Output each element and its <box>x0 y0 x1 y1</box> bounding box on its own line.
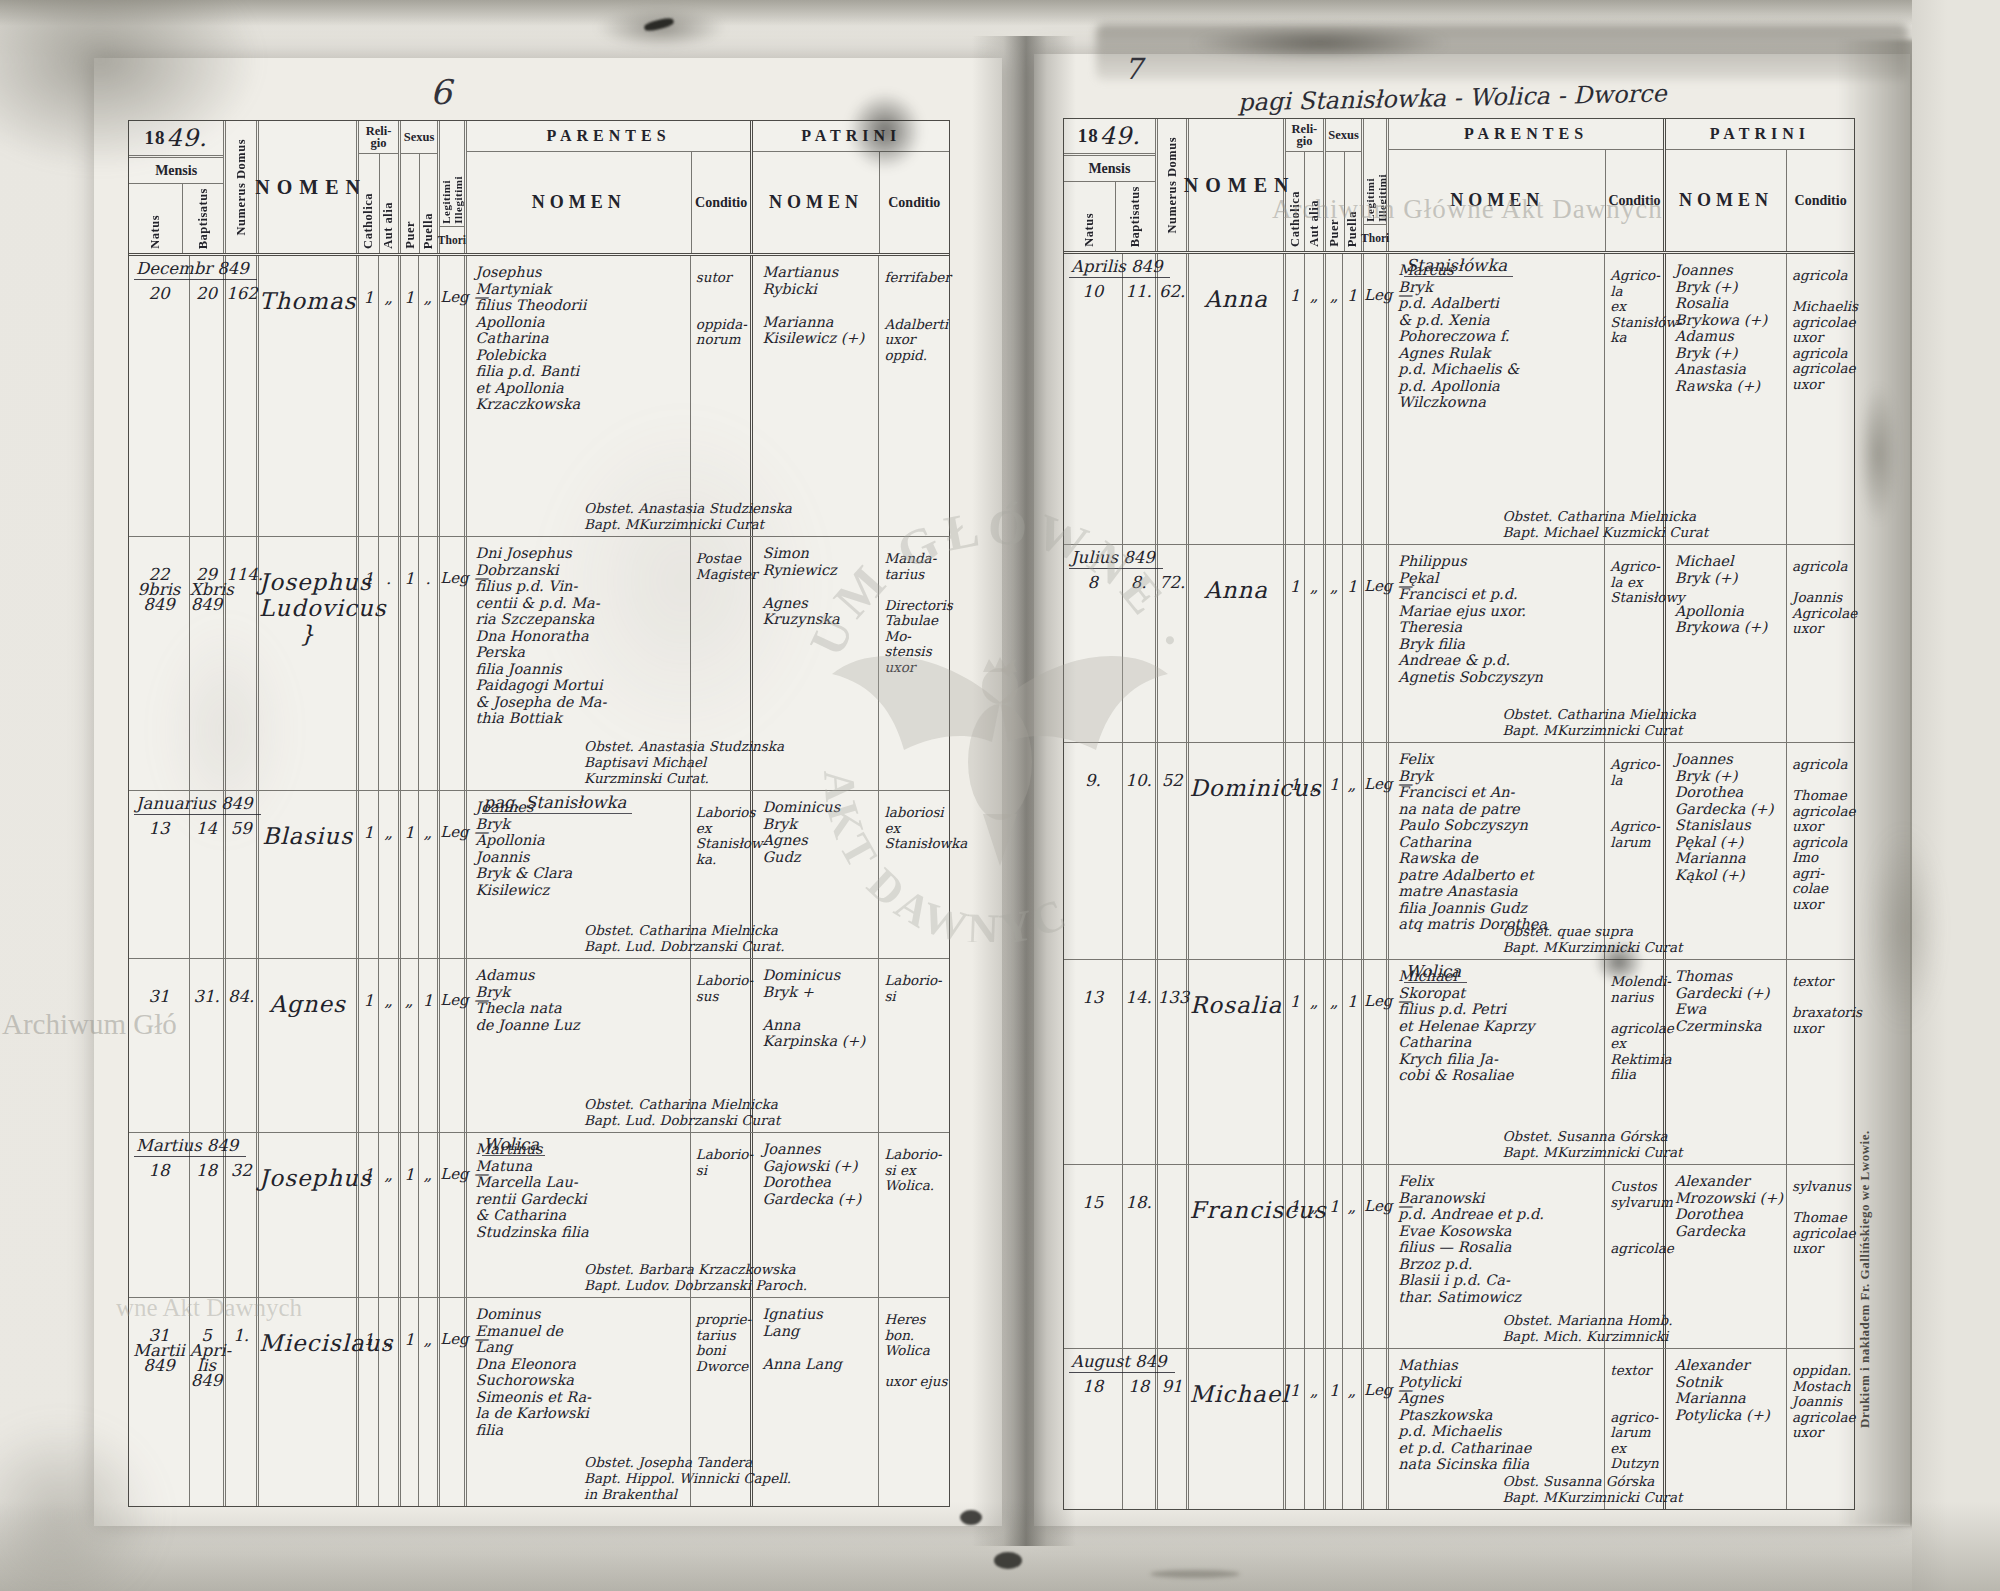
midwife-baptizer-note: Obstet. quae supra Bapt. MKurzimnicki Cu… <box>1502 923 1850 955</box>
year-label: 1849. <box>1064 119 1155 156</box>
baptisatus-value: 8. <box>1122 545 1155 742</box>
far-right-margin <box>1912 0 2000 1591</box>
thori-label: Thori <box>440 226 463 253</box>
month-annotation: Julius 849 <box>1069 548 1163 569</box>
catholica-mark: 1 <box>356 537 378 790</box>
catholica-mark: 1 <box>1283 1349 1304 1509</box>
natus-value: 31 Martii 849 <box>129 1298 189 1506</box>
midwife-baptizer-note: Obstet. Anastasia Studzienska Bapt. MKur… <box>584 500 945 532</box>
child-name: Thomas <box>256 256 356 536</box>
puella-mark: „ <box>1342 1349 1361 1509</box>
puer-mark: 1 <box>1323 1165 1342 1348</box>
parentes-nomen-label: NOMEN <box>467 152 691 253</box>
month-annotation: Januarius 849 <box>134 794 261 815</box>
patrini-header-block: PATRINI NOMEN Conditio <box>750 121 949 253</box>
aut-alia-mark: „ <box>1304 254 1323 544</box>
godparents-condition: agricola Michaelis agricolae uxor agrico… <box>1786 254 1854 544</box>
year-handwritten: 49. <box>1100 122 1141 150</box>
nomen-header: NOMEN <box>256 121 356 253</box>
baptisatus-value: 14 <box>189 791 223 958</box>
register-row: Januarius 849 pag. Stanisłowka 13 14 59 … <box>129 790 949 958</box>
legitimi-mark: Leg — <box>1361 743 1386 959</box>
register-row: 31 Martii 849 5 Apri- lis 849 1. Miecisl… <box>129 1297 949 1506</box>
legitimi-header-block: Legitimi Illegitimi Thori <box>437 121 463 253</box>
baptisatus-value: 18 <box>189 1133 223 1297</box>
baptisatus-value: 29 Xbris 849 <box>189 537 223 790</box>
domus-value <box>1155 1165 1187 1348</box>
parentes-label: PARENTES <box>1389 119 1662 150</box>
aut-alia-mark: „ <box>1304 1349 1323 1509</box>
aut-alia-label: Aut alia <box>381 202 396 249</box>
aut-alia-mark: . <box>378 537 398 790</box>
year-label: 1849. <box>129 121 223 158</box>
child-name: Josephus Ludovicus } <box>256 537 356 790</box>
midwife-baptizer-note: Obstet. Catharina Mielnicka Bapt. Lud. D… <box>584 922 945 954</box>
aut-alia-mark: „ <box>378 256 398 536</box>
child-name: Rosalia <box>1186 960 1282 1164</box>
puer-mark: „ <box>1323 545 1342 742</box>
parentes-header-block: PARENTES NOMEN Conditio <box>1386 119 1662 251</box>
month-annotation: Martius 849 <box>134 1136 246 1157</box>
parents-names: Marcus Bryk p.d. Adalberti & p.d. Xenia … <box>1386 254 1604 544</box>
numerus-domus-header: Numerus Domus <box>1155 119 1187 251</box>
midwife-baptizer-note: Obstet. Catharina Mielnicka Bapt. MKurzi… <box>1502 706 1850 738</box>
parentes-conditio-label: Conditio <box>1605 150 1662 251</box>
child-name: Agnes <box>256 959 356 1132</box>
right-page-number: 7 <box>1124 52 1142 86</box>
patrini-label: PATRINI <box>1666 119 1854 150</box>
patrini-header-block: PATRINI NOMEN Conditio <box>1663 119 1854 251</box>
natus-value: 31 <box>129 959 189 1132</box>
natus-value: 22 9bris 849 <box>129 537 189 790</box>
register-row: Wolica 13 14. 133 Rosalia 1 „ „ 1 Leg — … <box>1064 959 1854 1164</box>
place-annotation: pag. Stanisłowka <box>482 793 633 814</box>
month-annotation: Decembr 849 <box>134 259 257 280</box>
child-name: Miecislaus <box>256 1298 356 1506</box>
legitimi-mark: Leg — <box>437 959 463 1132</box>
aut-alia-label: Aut alia <box>1307 200 1322 247</box>
month-annotation: August 849 <box>1069 1352 1175 1373</box>
puer-mark: „ <box>398 959 418 1132</box>
parentes-label: PARENTES <box>467 121 751 152</box>
religio-header-block: Reli- gio Catholica Aut alia <box>356 121 398 253</box>
natus-value: 8 <box>1064 545 1122 742</box>
illegitimi-label: Illegitimi <box>1376 174 1386 222</box>
aut-alia-mark: „ <box>378 1298 398 1506</box>
baptisatus-value: 5 Apri- lis 849 <box>189 1298 223 1506</box>
register-table-right: 1849. Mensis Natus Baptisatus Numerus Do… <box>1063 118 1855 1510</box>
ink-dash-top <box>643 17 674 33</box>
parentes-nomen-label: NOMEN <box>1389 150 1605 251</box>
midwife-baptizer-note: Obstet. Barbara Krzaczkowska Bapt. Ludov… <box>584 1261 945 1293</box>
scanned-baptism-register: UM GŁÓWNE · AKT DAWNYCH Archiwum Główne … <box>0 0 2000 1591</box>
sexus-label: Sexus <box>401 121 437 154</box>
mensis-label: Mensis <box>1064 156 1155 182</box>
catholica-mark: 1 <box>356 1298 378 1506</box>
puella-mark: „ <box>418 1133 438 1297</box>
domus-value: 59 <box>223 791 256 958</box>
aut-alia-mark: „ <box>378 791 398 958</box>
midwife-baptizer-note: Obstet. Catharina Mielnicka Bapt. Michae… <box>1502 508 1850 540</box>
register-table-left: 1849. Mensis Natus Baptisatus Numerus Do… <box>128 120 950 1507</box>
domus-value: 84. <box>223 959 256 1132</box>
puer-mark: „ <box>1323 254 1342 544</box>
legitimi-mark: Leg — <box>1361 254 1386 544</box>
puer-mark: 1 <box>398 537 418 790</box>
baptisatus-label: Baptisatus <box>1128 186 1143 247</box>
child-name: Josephus <box>256 1133 356 1297</box>
puer-mark: 1 <box>398 791 418 958</box>
top-center-smudge <box>596 8 726 48</box>
puella-mark: „ <box>1342 1165 1361 1348</box>
parentes-conditio-label: Conditio <box>691 152 751 253</box>
catholica-mark: 1 <box>1283 545 1304 742</box>
catholica-mark: 1 <box>356 256 378 536</box>
year-printed: 18 <box>1078 125 1099 147</box>
puer-mark: 1 <box>398 256 418 536</box>
natus-value: 18 <box>1064 1349 1122 1509</box>
midwife-baptizer-note: Obstet. Anastasia Studzinska Baptisavi M… <box>584 738 945 786</box>
domus-value: 133 <box>1155 960 1187 1164</box>
parentes-header-block: PARENTES NOMEN Conditio <box>464 121 751 253</box>
natus-value: 20 <box>129 256 189 536</box>
left-page-number: 6 <box>430 72 452 112</box>
baptisatus-value: 18. <box>1122 1165 1155 1348</box>
baptisatus-value: 31. <box>189 959 223 1132</box>
domus-value: 91 <box>1155 1349 1187 1509</box>
legitimi-mark: Leg — <box>437 537 463 790</box>
sexus-header-block: Sexus Puer Puella <box>398 121 437 253</box>
register-row: 22 9bris 849 29 Xbris 849 114. Josephus … <box>129 536 949 790</box>
aut-alia-mark: „ <box>1304 545 1323 742</box>
baptisatus-label: Baptisatus <box>196 188 211 249</box>
legitimi-header-block: Legitimi Illegitimi Thori <box>1361 119 1386 251</box>
register-row: 15 18. Franciscus 1 „ 1 „ Leg — Felix Ba… <box>1064 1164 1854 1348</box>
legitimi-label: Legitimi <box>440 180 452 224</box>
top-edge-shadow <box>0 0 2000 26</box>
binding-streak <box>1150 1570 1240 1578</box>
mensis-header-block: 1849. Mensis Natus Baptisatus <box>1064 119 1155 251</box>
legitimi-mark: Leg — <box>1361 545 1386 742</box>
aut-alia-mark: „ <box>1304 1165 1323 1348</box>
puella-mark: „ <box>1342 743 1361 959</box>
place-annotation: Wolica <box>482 1135 545 1156</box>
register-row: Decembr 849 20 20 162 Thomas 1 „ 1 „ Leg… <box>129 256 949 536</box>
godparents-names: Martianus Rybicki Marianna Kisilewicz (+… <box>750 256 878 536</box>
register-row: Martius 849 Wolica 18 18 32 Josephus 1 „… <box>129 1132 949 1297</box>
godparents-names: Joannes Bryk (+) Rosalia Brykowa (+) Ada… <box>1663 254 1786 544</box>
midwife-baptizer-note: Obstet. Marianna Homb. Bapt. Mich. Kurzi… <box>1502 1312 1850 1344</box>
natus-value: 13 <box>1064 960 1122 1164</box>
register-row: 31 31. 84. Agnes 1 „ „ 1 Leg — Adamus Br… <box>129 958 949 1132</box>
godparents-condition: ferrifaber Adalberti uxor oppid. <box>878 256 949 536</box>
sexus-label: Sexus <box>1326 119 1361 152</box>
place-annotation: Stanisłówka <box>1404 256 1513 277</box>
puella-mark: 1 <box>1342 545 1361 742</box>
puer-mark: 1 <box>398 1298 418 1506</box>
catholica-label: Catholica <box>1288 191 1303 247</box>
puella-mark: . <box>418 537 438 790</box>
natus-label: Natus <box>1082 213 1097 247</box>
domus-value: 114. <box>223 537 256 790</box>
midwife-baptizer-note: Obstet. Susanna Górska Bapt. MKurzimnick… <box>1502 1128 1850 1160</box>
child-name: Anna <box>1186 254 1282 544</box>
domus-value: 52 <box>1155 743 1187 959</box>
legitimi-mark: Leg — <box>1361 1349 1386 1509</box>
domus-value: 162 <box>223 256 256 536</box>
catholica-mark: 1 <box>356 791 378 958</box>
legitimi-mark: Leg — <box>437 1133 463 1297</box>
mensis-label: Mensis <box>129 158 223 184</box>
puella-mark: „ <box>418 791 438 958</box>
parents-condition: sutor oppida- norum <box>690 256 751 536</box>
puella-mark: „ <box>418 256 438 536</box>
legitimi-mark: Leg — <box>437 1298 463 1506</box>
midwife-baptizer-note: Obstet. Josepha Tandera Bapt. Hippol. Wi… <box>584 1454 945 1502</box>
catholica-mark: 1 <box>356 1133 378 1297</box>
mensis-header-block: 1849. Mensis Natus Baptisatus <box>129 121 223 253</box>
patrini-conditio-label: Conditio <box>1786 150 1854 251</box>
baptisatus-value: 20 <box>189 256 223 536</box>
baptisatus-value: 11. <box>1122 254 1155 544</box>
domus-value: 1. <box>223 1298 256 1506</box>
legitimi-label: Legitimi <box>1364 178 1376 222</box>
aut-alia-mark: „ <box>1304 743 1323 959</box>
catholica-mark: 1 <box>356 959 378 1132</box>
sexus-header-block: Sexus Puer Puella <box>1323 119 1361 251</box>
natus-value: 10 <box>1064 254 1122 544</box>
catholica-mark: 1 <box>1283 1165 1304 1348</box>
puer-mark: „ <box>1323 960 1342 1164</box>
puella-mark: 1 <box>418 959 438 1132</box>
parents-names: Josephus Martyniak filius Theodorii Apol… <box>464 256 690 536</box>
midwife-baptizer-note: Obst. Susanna Górska Bapt. MKurzimnicki … <box>1502 1473 1850 1505</box>
patrini-label: PATRINI <box>753 121 949 152</box>
year-printed: 18 <box>145 127 166 149</box>
printer-imprint: Drukiem i nakładem Fr. Gallińskiego we L… <box>1857 996 1873 1428</box>
baptisatus-value: 18 <box>1122 1349 1155 1509</box>
nomen-header: NOMEN <box>1186 119 1282 251</box>
catholica-mark: 1 <box>1283 743 1304 959</box>
child-name: Anna <box>1186 545 1282 742</box>
table-header: 1849. Mensis Natus Baptisatus Numerus Do… <box>1064 119 1854 254</box>
register-row: Julius 849 8 8. 72. Anna 1 „ „ 1 Leg — P… <box>1064 544 1854 742</box>
religio-label: Reli- gio <box>359 121 398 154</box>
puella-mark: „ <box>418 1298 438 1506</box>
baptisatus-value: 14. <box>1122 960 1155 1164</box>
thori-label: Thori <box>1364 224 1386 251</box>
catholica-mark: 1 <box>1283 960 1304 1164</box>
patrini-conditio-label: Conditio <box>879 152 949 253</box>
illegitimi-label: Illegitimi <box>452 176 463 224</box>
month-annotation: Aprilis 849 <box>1069 257 1170 278</box>
puer-mark: 1 <box>398 1133 418 1297</box>
aut-alia-mark: „ <box>378 959 398 1132</box>
puella-mark: 1 <box>1342 960 1361 1164</box>
child-name: Michael <box>1186 1349 1282 1509</box>
patrini-nomen-label: NOMEN <box>1666 150 1786 251</box>
place-annotation: Wolica <box>1404 962 1467 983</box>
natus-label: Natus <box>148 215 163 249</box>
child-name: Franciscus <box>1186 1165 1282 1348</box>
aut-alia-mark: „ <box>378 1133 398 1297</box>
puer-mark: 1 <box>1323 743 1342 959</box>
child-name: Blasius <box>256 791 356 958</box>
catholica-label: Catholica <box>361 193 376 249</box>
puer-label: Puer <box>1327 219 1342 247</box>
numerus-domus-header: Numerus Domus <box>223 121 256 253</box>
natus-value: 15 <box>1064 1165 1122 1348</box>
puer-label: Puer <box>403 221 418 249</box>
legitimi-mark: Leg — <box>1361 960 1386 1164</box>
religio-label: Reli- gio <box>1286 119 1323 152</box>
natus-value: 9. <box>1064 743 1122 959</box>
legitimi-mark: Leg — <box>437 256 463 536</box>
puella-label: Puella <box>1345 211 1360 247</box>
natus-value: 13 <box>129 791 189 958</box>
register-row: 9. 10. 52 Dominicus 1 „ 1 „ Leg — Felix … <box>1064 742 1854 959</box>
baptisatus-value: 10. <box>1122 743 1155 959</box>
patrini-nomen-label: NOMEN <box>753 152 878 253</box>
legitimi-mark: Leg — <box>437 791 463 958</box>
table-header: 1849. Mensis Natus Baptisatus Numerus Do… <box>129 121 949 256</box>
domus-value: 72. <box>1155 545 1187 742</box>
register-row: Aprilis 849 Stanisłówka 10 11. 62. Anna … <box>1064 254 1854 544</box>
register-row: August 849 18 18 91 Michael 1 „ 1 „ Leg … <box>1064 1348 1854 1509</box>
puer-mark: 1 <box>1323 1349 1342 1509</box>
legitimi-mark: Leg — <box>1361 1165 1386 1348</box>
puella-mark: 1 <box>1342 254 1361 544</box>
aut-alia-mark: „ <box>1304 960 1323 1164</box>
year-handwritten: 49. <box>167 124 208 152</box>
binding-mark-2 <box>994 1552 1022 1569</box>
catholica-mark: 1 <box>1283 254 1304 544</box>
parents-condition: Agrico- la ex Stanisłów- ka <box>1604 254 1662 544</box>
midwife-baptizer-note: Obstet. Catharina Mielnicka Bapt. Lud. D… <box>584 1096 945 1128</box>
child-name: Dominicus <box>1186 743 1282 959</box>
domus-value: 62. <box>1155 254 1187 544</box>
puella-label: Puella <box>421 213 436 249</box>
religio-header-block: Reli- gio Catholica Aut alia <box>1283 119 1323 251</box>
domus-value: 32 <box>223 1133 256 1297</box>
natus-value: 18 <box>129 1133 189 1297</box>
